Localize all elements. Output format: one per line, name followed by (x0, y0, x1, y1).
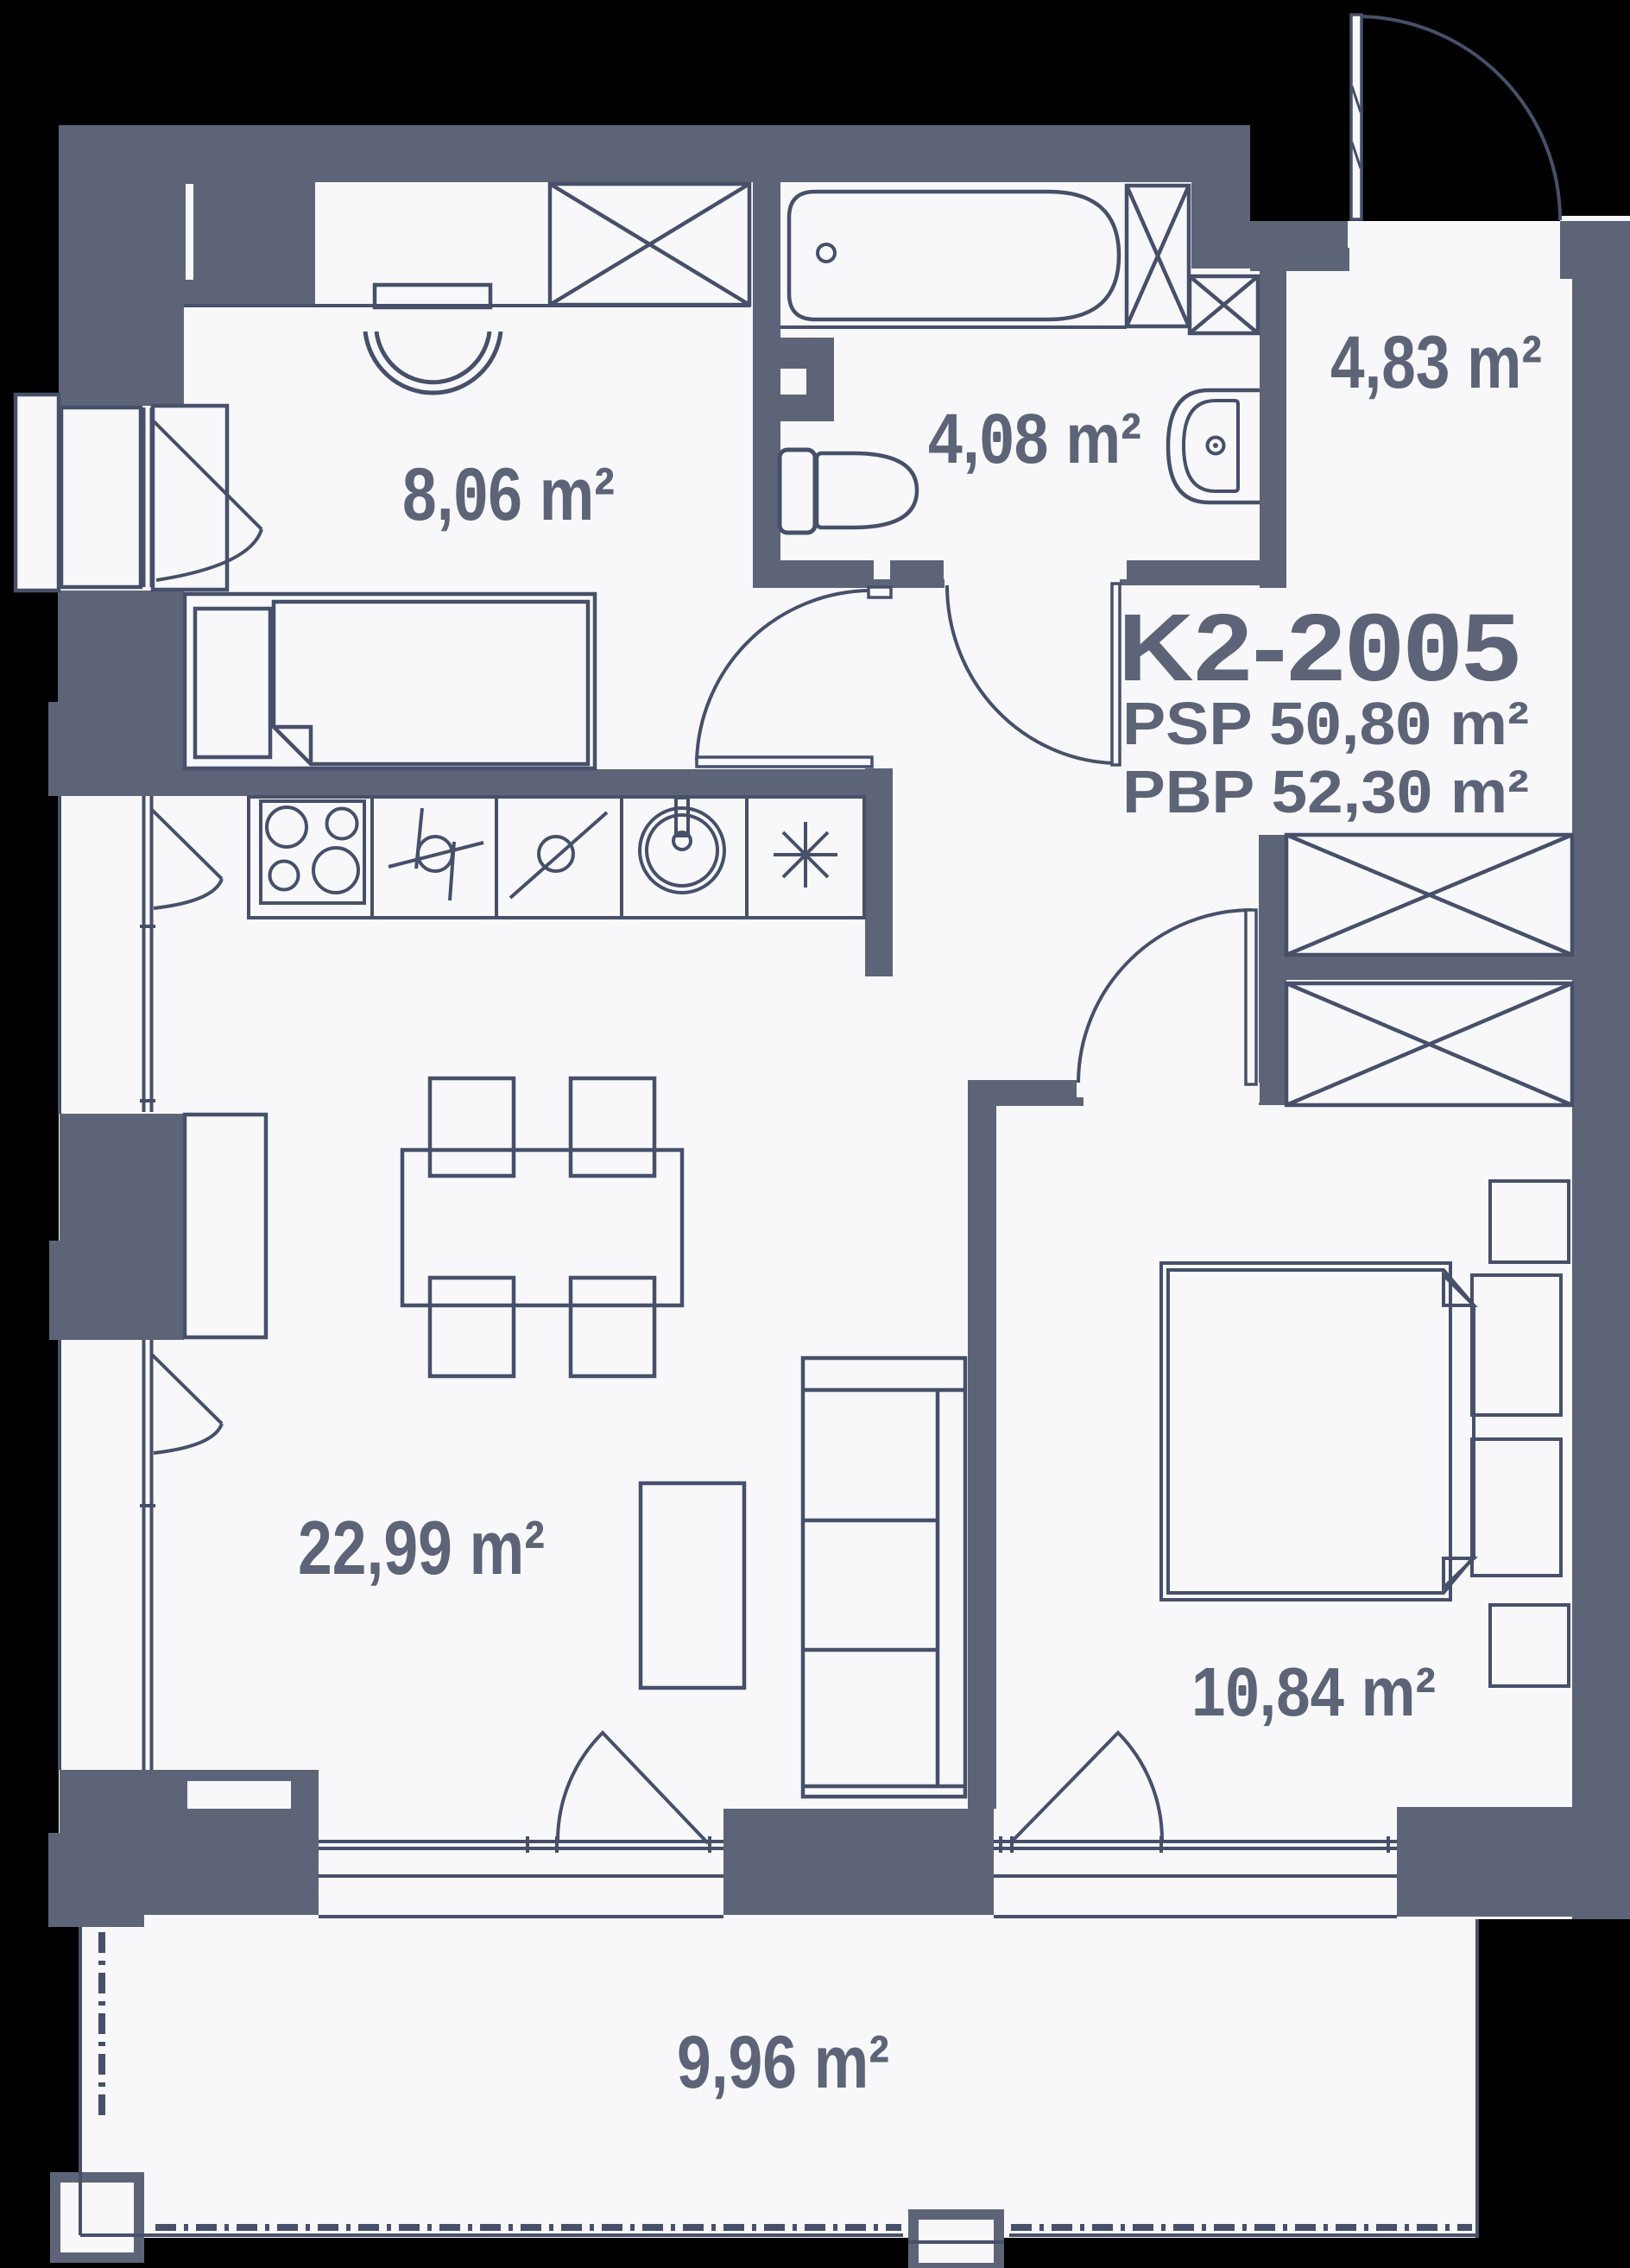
svg-text:4,08 m²: 4,08 m² (928, 400, 1141, 478)
svg-text:4,83 m²: 4,83 m² (1330, 321, 1542, 404)
svg-text:K2-2005: K2-2005 (1118, 595, 1520, 701)
svg-text:10,84 m²: 10,84 m² (1191, 1653, 1436, 1730)
svg-text:9,96 m²: 9,96 m² (677, 2021, 889, 2104)
svg-text:PBP 52,30 m²: PBP 52,30 m² (1122, 758, 1529, 825)
svg-text:8,06 m²: 8,06 m² (402, 453, 615, 536)
svg-text:22,99 m²: 22,99 m² (298, 1505, 545, 1590)
